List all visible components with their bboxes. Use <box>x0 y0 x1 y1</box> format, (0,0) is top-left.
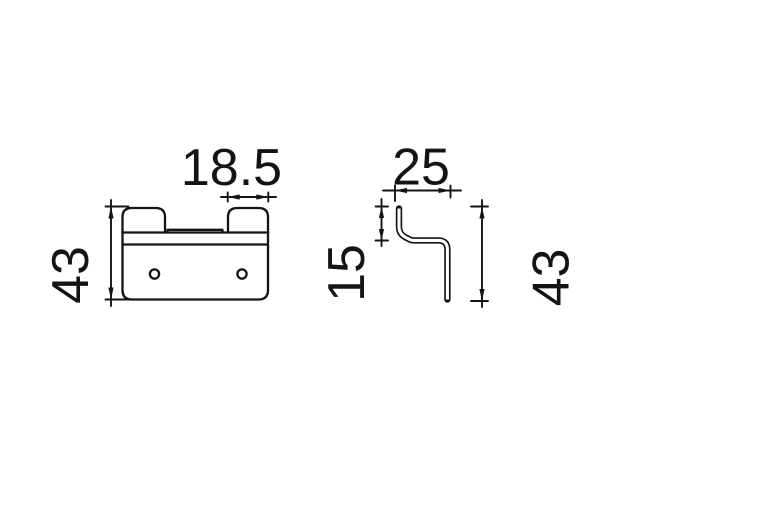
dim-offset-label: 15 <box>318 244 376 302</box>
dim-depth-label: 25 <box>392 139 450 197</box>
dim-offset-arrow-up <box>379 207 384 219</box>
front-right-tab-outline <box>228 208 268 233</box>
front-hole-right <box>237 269 246 278</box>
dim-front-height-arrow-down <box>108 288 113 300</box>
dim-side-height: 43 <box>471 200 581 307</box>
front-left-tab-outline <box>123 208 166 233</box>
front-hole-left <box>150 269 159 278</box>
dim-tab-width: 18.5 <box>181 139 282 202</box>
dim-tab-width-label: 18.5 <box>181 139 282 197</box>
side-profile-outline <box>399 209 447 300</box>
dim-side-height-label: 43 <box>523 249 581 307</box>
dim-side-height-arrow-up <box>479 207 484 219</box>
front-body-outline <box>123 232 269 300</box>
dim-front-height: 43 <box>42 200 129 306</box>
side-profile-core <box>399 209 447 300</box>
drawing-canvas: 18.5 43 25 <box>0 0 765 520</box>
front-view <box>123 208 269 300</box>
dim-depth: 25 <box>383 139 461 202</box>
dim-offset: 15 <box>318 199 388 302</box>
side-view <box>399 209 447 300</box>
dim-offset-arrow-down <box>379 229 384 241</box>
technical-drawing: 18.5 43 25 <box>0 0 765 520</box>
dim-side-height-arrow-down <box>479 289 484 301</box>
dim-front-height-arrow-up <box>108 207 113 219</box>
dim-front-height-label: 43 <box>42 246 100 304</box>
